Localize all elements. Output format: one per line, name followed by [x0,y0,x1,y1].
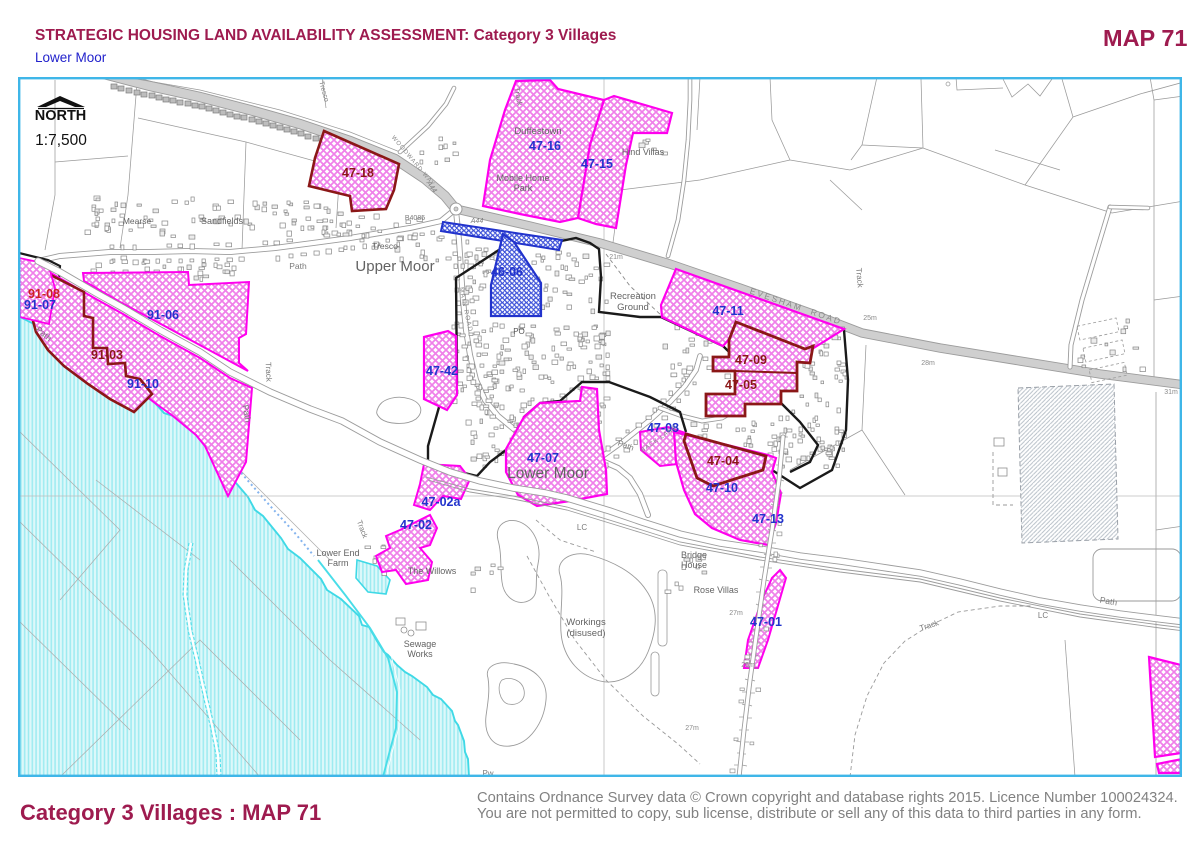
svg-text:47-02a: 47-02a [422,495,462,509]
svg-text:Upper Moor: Upper Moor [355,258,434,275]
svg-text:Workings: Workings [566,617,606,628]
svg-text:47-09: 47-09 [735,353,767,367]
svg-text:46-06: 46-06 [491,265,523,279]
svg-text:91-06: 91-06 [147,308,179,322]
svg-text:Path: Path [289,261,307,271]
svg-text:A44: A44 [470,218,484,225]
svg-text:Tresco: Tresco [372,241,398,251]
svg-text:47-11: 47-11 [712,304,743,318]
svg-text:21m: 21m [609,254,623,261]
svg-text:47-10: 47-10 [706,481,738,495]
svg-text:Works: Works [407,649,433,659]
svg-text:LC: LC [577,523,587,532]
svg-text:Mearse: Mearse [123,216,152,226]
svg-text:47-07: 47-07 [527,451,559,465]
svg-text:Duffestown: Duffestown [514,126,561,137]
svg-text:27m: 27m [729,610,743,617]
svg-text:47-42: 47-42 [426,364,458,378]
svg-text:47-18: 47-18 [342,166,374,180]
svg-text:Bridge: Bridge [681,550,707,560]
svg-text:Mobile Home: Mobile Home [496,173,549,183]
svg-text:91-08: 91-08 [28,287,60,301]
svg-text:47-05: 47-05 [725,378,757,392]
svg-text:26m: 26m [741,662,755,669]
svg-text:Park: Park [514,183,533,193]
svg-text:LC: LC [1038,611,1048,620]
svg-text:1:7,500: 1:7,500 [35,132,87,149]
svg-text:31m: 31m [1164,389,1178,396]
svg-text:PO: PO [513,327,525,336]
svg-text:(disused): (disused) [566,628,605,639]
svg-text:The Willows: The Willows [408,566,457,576]
svg-text:Track: Track [854,268,865,289]
svg-text:47-16: 47-16 [529,139,561,153]
svg-text:91-10: 91-10 [127,377,159,391]
svg-text:Recreation: Recreation [610,291,656,302]
svg-text:Lower End: Lower End [316,548,359,558]
svg-text:Hind Villas: Hind Villas [622,147,665,157]
svg-text:25m: 25m [863,315,877,322]
svg-text:47-13: 47-13 [752,512,784,526]
svg-text:Track: Track [264,362,274,383]
svg-text:Rose Villas: Rose Villas [694,585,739,595]
svg-text:House: House [681,560,707,570]
svg-text:Sandfields: Sandfields [201,216,244,226]
svg-text:Farm: Farm [328,558,349,568]
svg-text:B4085: B4085 [405,215,425,222]
svg-text:91-03: 91-03 [91,348,123,362]
svg-text:Lower Moor: Lower Moor [507,465,589,482]
svg-text:NORTH: NORTH [35,108,87,124]
svg-text:47-15: 47-15 [581,157,613,171]
svg-text:Sewage: Sewage [404,639,437,649]
svg-text:28m: 28m [921,360,935,367]
svg-text:47-04: 47-04 [707,454,739,468]
svg-text:Ground: Ground [617,302,649,313]
svg-text:47-01: 47-01 [750,615,782,629]
svg-text:27m: 27m [685,725,699,732]
svg-text:47-02: 47-02 [400,518,432,532]
